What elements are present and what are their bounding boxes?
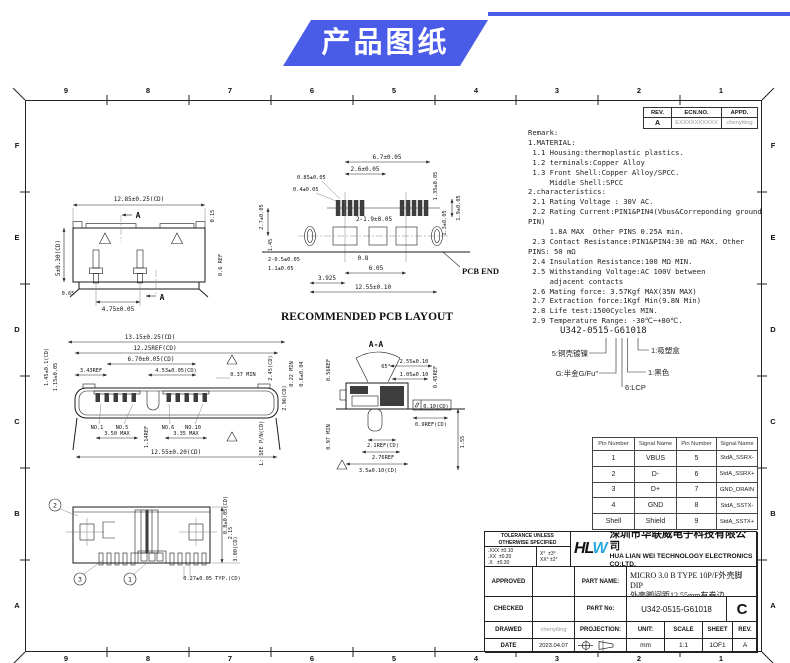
pin-col-header: Signal Name [635, 438, 677, 451]
date-value: 2023.04.07 [533, 639, 575, 653]
dim-label: 2.76REF [372, 455, 394, 461]
pin-col-header: Signal Name [717, 438, 758, 451]
pin-cell: Shield [635, 514, 677, 530]
ecn-value: EXXXXXXXXXX [672, 118, 722, 129]
pcb-layout-caption: RECOMMENDED PCB LAYOUT [281, 311, 453, 323]
remark-line: 2.9 Temperature Range: -30℃~+80℃. [528, 316, 762, 326]
remark-line: 1.MATERIAL: [528, 138, 762, 148]
pin-cell: 7 [677, 482, 717, 498]
pin-cell: StdA_SSTX- [717, 498, 758, 514]
remark-line: 2.characteristics: [528, 187, 762, 197]
approved-label: APPROVED [485, 567, 533, 597]
dim-label: 0.85±0.05 [297, 175, 326, 181]
pin-cell: Shell [593, 514, 635, 530]
company-name-en: HUA LIAN WEI TECHNOLOGY ELECTRONICS CO;L… [610, 553, 754, 567]
remark-line: 2.7 Extraction force:1Kgf Min(9.8N Min) [528, 296, 762, 306]
pcb-end-label: PCB END [462, 266, 499, 276]
dim-label: 0.4±0.05 [293, 187, 319, 193]
dim-label: 1.05±0.10 [400, 372, 429, 378]
size-letter: C [727, 597, 758, 622]
dim-label: 0.6±0.04 [299, 361, 305, 387]
stake-symbol-icon [337, 460, 347, 469]
logo-w: W [592, 540, 606, 557]
remark-line: 1.2 terminals:Copper Alloy [528, 158, 762, 168]
dim-label: 1.1±0.05 [268, 266, 294, 272]
projection-symbol-icon [575, 639, 625, 652]
remark-line: 2.3 Contact Resistance:PIN1&PIN4:30 mΩ M… [528, 237, 762, 247]
scale-label: SCALE [665, 622, 703, 639]
part-code-color: 1:黑色 [648, 367, 669, 378]
pin-cell: StdA_SSRX+ [717, 466, 758, 482]
dim-label: 4.75±0.05 [102, 306, 135, 313]
dim-label: 3.35 MAX [173, 431, 199, 437]
dim-label: 1.9±0.05 [456, 195, 462, 221]
part-code-leaders [589, 338, 649, 387]
dim-label: 65° [381, 364, 391, 370]
pin-cell: 5 [677, 451, 717, 467]
pin-col-header: Pin Number [677, 438, 717, 451]
dim-label: 2.7±0.05 [259, 204, 265, 230]
pin-cell: VBUS [635, 451, 677, 467]
title-block: TOLERANCE UNLESS OTHERWISE SPECIFIED .XX… [484, 531, 757, 652]
part-name-line1: MICRO 3.0 B TYPE 10P/F外壳脚DIP [630, 571, 754, 591]
section-arrow-label: A [160, 293, 165, 302]
drawed-value: chenyiting [533, 622, 575, 639]
pin-cell: 8 [677, 498, 717, 514]
company-name-cn: 深圳市华联威电子科技有限公司 [610, 532, 754, 553]
dim-label: 5±0.30(CD) [55, 240, 62, 276]
dim-label: 1.3±0.05 [442, 210, 448, 236]
pin-cell: GND [635, 498, 677, 514]
pin-table: Pin Number Signal Name Pin Number Signal… [592, 437, 758, 530]
dip-leg [90, 250, 147, 283]
dim-label: 2-0.5±0.05 [268, 257, 300, 263]
projection-label: PROJECTION: [575, 622, 627, 639]
table-row: 1 VBUS 5 StdA_SSRX- [593, 451, 758, 467]
approved-value [533, 567, 575, 597]
dim-label: 1.15±0.05 [53, 363, 59, 392]
view-bottom: 2 3 1 0.8±0.05(CD) 2.15 3.00(CD) 0.27±0.… [49, 496, 241, 585]
pin-cell: 4 [593, 498, 635, 514]
view-side-elevation: 12.85±0.25(CD) 0.15 0.6 REF 5±0.30(CD) 0… [55, 196, 224, 313]
remark-line: 2.4 Insulation Resistance:100 MΩ MIN. [528, 257, 762, 267]
pin-number-label: NO.1 [91, 425, 104, 431]
dim-label: 2-1.9±0.05 [356, 216, 393, 223]
company-cell: HLW 深圳市华联威电子科技有限公司 HUA LIAN WEI TECHNOLO… [571, 532, 758, 567]
part-name-value: MICRO 3.0 B TYPE 10P/F外壳脚DIP 外壳脚间距12.55m… [627, 567, 758, 597]
rev-value: A [644, 118, 672, 129]
dim-label: 6.05 [369, 265, 384, 272]
balloon-callout: 3 [78, 576, 82, 584]
pin-cell: 1 [593, 451, 635, 467]
dim-label: 12.55±0.10 [355, 284, 392, 291]
company-logo: HLW [574, 541, 607, 557]
remark-line: 1.1 Housing:thermoplastic plastics. [528, 148, 762, 158]
remark-line: 2.6 Mating force: 3.57Kgf MAX(35N MAX) [528, 287, 762, 297]
part-no-label: PART No: [575, 597, 627, 622]
dim-label: 0.22 MIN [289, 361, 295, 387]
rev-value: A [733, 639, 758, 653]
sheet-label: SHEET [703, 622, 733, 639]
view-section-aa: A-A 0.10(CD) 0.9REF(CD) 1.55 2.55±0.10 1… [282, 340, 466, 474]
tolerance-linear: .XXX ±0.10 .XX ±0.20 .X ±0.30 [485, 547, 537, 566]
dim-label: 0.45REF [433, 366, 439, 388]
part-code-pack: 1:吸塑盒 [651, 345, 680, 356]
dim-label: 0.6 REF [218, 254, 224, 276]
dim-label: 0.56REF [326, 359, 332, 381]
dim-label: 2.6±0.05 [351, 166, 380, 173]
view-front-face: 13.15±0.25(CD) 12.25REF(CD) 6.70±0.05(CD… [44, 334, 285, 465]
remark-line: 2.5 Withstanding Voltage:AC 100V between [528, 267, 762, 277]
tolerance-title-2: OTHERWISE SPECIFIED [499, 540, 557, 546]
tolerance-title-1: TOLERANCE UNLESS [501, 533, 554, 539]
dim-label: 6.7±0.05 [373, 154, 402, 161]
projection-symbol-cell [575, 639, 627, 653]
dim-label: 1.14REF [144, 426, 150, 448]
remark-line: 2.2 Rating Current:PIN1&PIN4(Vbus&Correp… [528, 207, 762, 217]
dim-label: 3.925 [318, 275, 336, 282]
dim-label: 1.35±0.05 [433, 172, 439, 201]
rev-label: REV. [733, 622, 758, 639]
checked-value [533, 597, 575, 622]
part-code-plating: G:半金G/Fu″ [545, 368, 598, 379]
dim-label: 2.55±0.10 [400, 359, 429, 365]
remark-line: 2.8 Life test:1500Cycles MIN. [528, 306, 762, 316]
pin-col-header: Pin Number [593, 438, 635, 451]
pin-cell: D+ [635, 482, 677, 498]
dim-label: 0.15 [210, 210, 216, 223]
table-row: 3 D+ 7 GND_DRAIN [593, 482, 758, 498]
pin-cell: 3 [593, 482, 635, 498]
dim-label: 0.65 [62, 291, 75, 297]
revision-table: REV. ECN.NO. APPD. A EXXXXXXXXXX chenyit… [643, 107, 758, 129]
dim-label: 3.5±0.10(CD) [359, 468, 397, 474]
appd-header: APPD. [722, 108, 758, 118]
section-title: A-A [369, 340, 384, 349]
ecn-header: ECN.NO. [672, 108, 722, 118]
drawed-label: DRAWED [485, 622, 533, 639]
part-name-label: PART NAME: [575, 567, 627, 597]
pin-cell: StdA_SSRX- [717, 451, 758, 467]
scale-value: 1:1 [665, 639, 703, 653]
dim-label: 0.37 MIN [230, 372, 256, 378]
remark-line: 1.8A MAX Other PINS 0.25A min. [528, 227, 762, 237]
dim-label: 12.25REF(CD) [133, 345, 176, 352]
logo-hl: HL [574, 540, 592, 557]
dim-label: 6.70±0.05(CD) [128, 356, 175, 363]
part-code-shell: 5:铜壳镀镍 [540, 348, 588, 359]
dim-label: 0.10(CD) [423, 404, 449, 410]
pin-cell: 9 [677, 514, 717, 530]
pin-cell: 6 [677, 466, 717, 482]
pin-cell: D- [635, 466, 677, 482]
remark-line: PINS: 50 mΩ [528, 247, 762, 257]
remark-line: Middle Shell:SPCC [528, 178, 762, 188]
dim-label: 2.45(CD) [268, 355, 274, 381]
remark-block: Remark: 1.MATERIAL: 1.1 Housing:thermopl… [528, 128, 762, 326]
dim-label: 2.1REF(CD) [367, 443, 399, 449]
dim-label: 3.50 MAX [104, 431, 130, 437]
dim-label: 0.97 MIN [326, 424, 332, 450]
dim-label: 0.8 [358, 255, 369, 262]
unit-label: UNIT: [627, 622, 665, 639]
sheet-value: 1OF1 [703, 639, 733, 653]
tolerance-angular: X° ±3° XX° ±2° [537, 547, 570, 566]
dim-label: 0.9REF(CD) [415, 422, 447, 428]
dim-label: 12.55±0.20(CD) [151, 449, 202, 456]
stake-symbol-icon [227, 432, 237, 441]
dim-label: 4.53±0.05(CD) [155, 368, 196, 374]
contact-pins [96, 393, 208, 402]
part-code-housing: 6:LCP [625, 383, 646, 392]
dim-label: 1.45 [268, 239, 274, 252]
table-row: Shell Shield 9 StdA_SSTX+ [593, 514, 758, 530]
balloon-callout: 2 [53, 502, 57, 510]
dim-label: 1.55 [460, 436, 466, 449]
remark-line: 1.3 Front Shell:Copper Alloy/SPCC. [528, 168, 762, 178]
bottom-pins [99, 551, 206, 565]
dim-label: 1.45±0.1(CD) [44, 348, 50, 386]
stake-symbol-icon [227, 355, 237, 364]
unit-value: mm [627, 639, 665, 653]
pin-cell: 2 [593, 466, 635, 482]
part-no-value: U342-0515-G61018 [627, 597, 727, 622]
stake-symbol-icon [100, 233, 111, 244]
remark-line: PIN) [528, 217, 762, 227]
pin-cell: GND_DRAIN [717, 482, 758, 498]
checked-label: CHECKED [485, 597, 533, 622]
dim-label: 13.15±0.25(CD) [125, 334, 176, 341]
section-arrow-label: A [136, 211, 141, 220]
dim-label: 3.00(CD) [233, 536, 239, 562]
pin-cell: StdA_SSTX+ [717, 514, 758, 530]
remark-line: Remark: [528, 128, 762, 138]
rev-header: REV. [644, 108, 672, 118]
part-number: U342-0515-G61018 [560, 326, 647, 336]
appd-value: chenyiting [722, 118, 758, 129]
dim-label: L: SEE P/N(CD) [259, 421, 265, 466]
remark-line: adjacent contacts [528, 277, 762, 287]
date-label: DATE [485, 639, 533, 653]
dim-label: 0.27±0.05 TYP.(CD) [183, 576, 240, 582]
balloon-callout: 1 [128, 576, 132, 584]
remark-line: 2.1 Rating Voltage : 30V AC. [528, 197, 762, 207]
tolerance-cell: TOLERANCE UNLESS OTHERWISE SPECIFIED .XX… [485, 532, 571, 567]
table-row: 2 D- 6 StdA_SSRX+ [593, 466, 758, 482]
stake-symbol-icon [172, 233, 183, 244]
view-pcb-layout: PCB END 6.7±0.05 2.6±0.05 0.85±0.05 0.4±… [259, 154, 499, 323]
dim-label: 2.96(CD) [282, 385, 288, 411]
table-row: 4 GND 8 StdA_SSTX- [593, 498, 758, 514]
dim-label: 12.85±0.25(CD) [114, 196, 165, 203]
dim-label: 3.43REF [80, 368, 102, 374]
